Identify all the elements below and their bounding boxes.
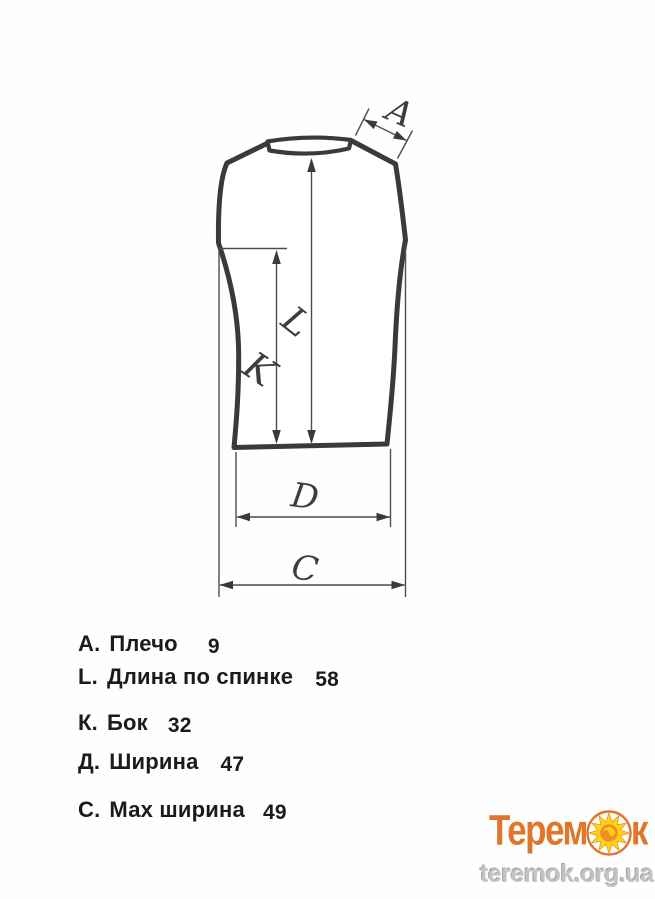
- measurement-letter: А.: [78, 631, 100, 657]
- logo-text-end: к: [631, 807, 647, 856]
- website-url: teremok.org.ua: [480, 860, 654, 889]
- sun-icon: [586, 810, 632, 856]
- measurement-value: 32: [168, 714, 192, 738]
- measurement-row-back-length: L. Длина по спинке 58: [78, 664, 339, 690]
- garment-diagram: A L K D C: [0, 0, 655, 620]
- measurement-letter: К.: [78, 710, 98, 736]
- measurement-value: 9: [208, 635, 220, 659]
- measurement-name: Ширина: [109, 749, 198, 775]
- measurement-letter: Д.: [78, 749, 100, 775]
- measurement-row-side: К. Бок 32: [78, 710, 192, 736]
- measurement-value: 47: [221, 753, 245, 777]
- label-width-D: D: [288, 475, 322, 519]
- measurement-name: Длина по спинке: [107, 664, 293, 690]
- measurement-row-shoulder: А. Плечо 9: [78, 631, 220, 657]
- logo-text-start: Терем: [489, 807, 587, 856]
- measurement-value: 58: [315, 668, 339, 692]
- collar-band: [268, 138, 352, 154]
- measurement-name: Мах ширина: [109, 797, 245, 823]
- page: A L K D C А. Плечо 9 L. Длина по спинке …: [0, 0, 655, 899]
- measurement-name: Плечо: [109, 631, 177, 657]
- measurement-letter: L.: [78, 664, 98, 690]
- measurement-value: 49: [263, 801, 287, 825]
- measurement-name: Бок: [107, 710, 148, 736]
- measurement-row-max-width: С. Мах ширина 49: [78, 797, 287, 823]
- measurement-row-width: Д. Ширина 47: [78, 749, 244, 775]
- teremok-logo: Терем к: [489, 803, 647, 861]
- measurement-letter: С.: [78, 797, 100, 823]
